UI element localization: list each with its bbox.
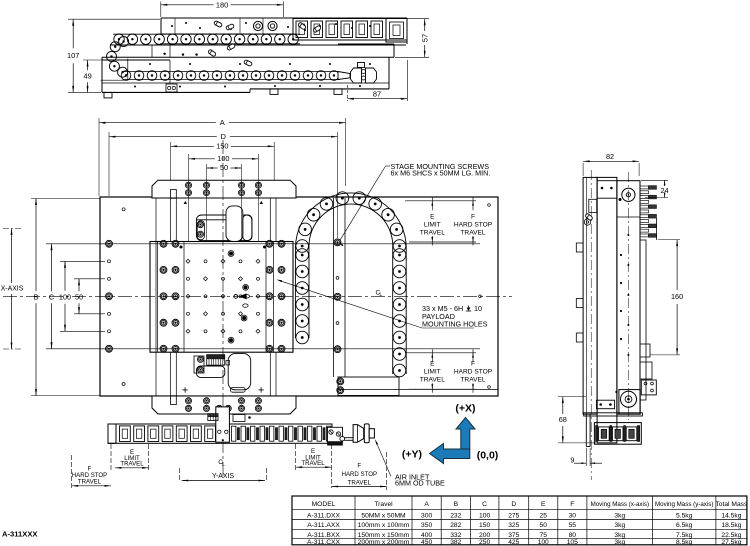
svg-text:200mm x 200mm: 200mm x 200mm (358, 539, 410, 546)
svg-text:3kg: 3kg (614, 539, 625, 546)
svg-text:350: 350 (421, 522, 432, 529)
svg-text:425: 425 (508, 539, 519, 546)
svg-text:TRAVEL: TRAVEL (78, 479, 102, 486)
svg-text:E: E (541, 501, 546, 508)
svg-text:Moving Mass (y-axis): Moving Mass (y-axis) (655, 501, 713, 508)
svg-text:L: L (222, 462, 225, 468)
svg-text:(0,0): (0,0) (477, 450, 499, 462)
svg-text:TRAVEL: TRAVEL (348, 479, 372, 486)
svg-text:150: 150 (216, 142, 228, 151)
svg-text:180: 180 (216, 0, 228, 9)
svg-text:Y-AXIS: Y-AXIS (212, 473, 234, 480)
svg-text:A-311.CXX: A-311.CXX (307, 539, 340, 546)
svg-text:TRAVEL: TRAVEL (120, 460, 144, 467)
svg-text:100: 100 (217, 154, 229, 163)
svg-text:50MM x 50MM: 50MM x 50MM (361, 512, 406, 519)
svg-text:27.5kg: 27.5kg (721, 539, 741, 546)
svg-text:L: L (379, 292, 382, 298)
svg-text:450: 450 (421, 539, 432, 546)
svg-text:E: E (430, 360, 435, 367)
svg-text:LIMIT: LIMIT (424, 222, 441, 229)
svg-text:MOUNTING HOLES: MOUNTING HOLES (422, 319, 488, 328)
svg-text:55: 55 (569, 522, 577, 529)
svg-text:TRAVEL: TRAVEL (460, 230, 485, 237)
svg-text:275: 275 (508, 512, 519, 519)
svg-text:A-311.AXX: A-311.AXX (307, 522, 340, 529)
svg-text:F: F (471, 360, 475, 367)
svg-text:D: D (220, 132, 226, 141)
svg-text:A-311.DXX: A-311.DXX (307, 512, 340, 519)
svg-text:49: 49 (83, 71, 91, 80)
svg-text:D: D (511, 501, 516, 508)
svg-text:100mm x 100mm: 100mm x 100mm (358, 522, 410, 529)
svg-text:TRAVEL: TRAVEL (460, 376, 485, 383)
svg-text:B: B (454, 501, 459, 508)
svg-text:A-311XXX: A-311XXX (2, 529, 37, 538)
svg-text:HARD STOP: HARD STOP (342, 471, 377, 478)
svg-text:232: 232 (450, 512, 461, 519)
svg-text:C: C (482, 501, 487, 508)
svg-text:14.5kg: 14.5kg (721, 512, 741, 519)
svg-text:50: 50 (220, 163, 228, 172)
svg-text:100: 100 (59, 293, 71, 302)
svg-text:6x M6 SHCS x 50MM LG. MIN.: 6x M6 SHCS x 50MM LG. MIN. (391, 169, 491, 178)
svg-text:3kg: 3kg (614, 522, 625, 529)
svg-text:57: 57 (421, 34, 430, 42)
svg-text:30: 30 (569, 512, 577, 519)
svg-text:3kg: 3kg (614, 512, 625, 519)
svg-text:8.5kg: 8.5kg (676, 539, 693, 546)
svg-text:TRAVEL: TRAVEL (301, 460, 325, 467)
svg-text:HARD STOP: HARD STOP (454, 222, 493, 229)
svg-text:A: A (424, 501, 429, 508)
svg-text:50: 50 (539, 522, 547, 529)
svg-text:Travel: Travel (374, 501, 393, 508)
svg-text:A: A (220, 118, 225, 127)
svg-text:18.5kg: 18.5kg (721, 522, 741, 529)
svg-text:6.5kg: 6.5kg (676, 522, 693, 529)
svg-text:HARD STOP: HARD STOP (454, 368, 493, 375)
svg-text:(+Y): (+Y) (402, 449, 422, 461)
svg-text:87: 87 (373, 89, 381, 98)
svg-text:F: F (357, 462, 361, 469)
svg-text:382: 382 (450, 539, 461, 546)
svg-text:C: C (49, 293, 55, 302)
svg-text:Moving Mass (x-axis): Moving Mass (x-axis) (591, 501, 649, 508)
svg-text:250: 250 (479, 539, 490, 546)
svg-text:24: 24 (660, 186, 668, 195)
svg-text:TRAVEL: TRAVEL (420, 230, 445, 237)
svg-text:100: 100 (538, 539, 549, 546)
svg-text:(+X): (+X) (455, 403, 475, 415)
svg-text:50: 50 (75, 293, 83, 302)
svg-text:Total Mass: Total Mass (715, 501, 748, 508)
svg-text:300: 300 (421, 512, 432, 519)
svg-text:105: 105 (567, 539, 578, 546)
svg-text:F: F (471, 214, 475, 221)
svg-text:160: 160 (671, 292, 683, 301)
svg-text:82: 82 (606, 152, 614, 161)
svg-text:107: 107 (67, 51, 79, 60)
svg-text:9: 9 (570, 455, 574, 464)
svg-text:282: 282 (450, 522, 461, 529)
svg-text:5.5kg: 5.5kg (676, 512, 693, 519)
svg-text:150: 150 (479, 522, 490, 529)
svg-text:6MM OD TUBE: 6MM OD TUBE (395, 479, 445, 488)
svg-text:TRAVEL: TRAVEL (420, 376, 445, 383)
svg-text:325: 325 (508, 522, 519, 529)
svg-text:X-AXIS: X-AXIS (1, 286, 24, 293)
svg-text:B: B (33, 293, 38, 302)
svg-text:F: F (570, 501, 574, 508)
svg-text:100: 100 (479, 512, 490, 519)
svg-text:10: 10 (474, 304, 482, 313)
svg-text:68: 68 (559, 415, 567, 424)
svg-text:LIMIT: LIMIT (424, 368, 441, 375)
svg-text:25: 25 (539, 512, 547, 519)
svg-text:MODEL: MODEL (312, 501, 336, 508)
svg-text:E: E (430, 214, 435, 221)
